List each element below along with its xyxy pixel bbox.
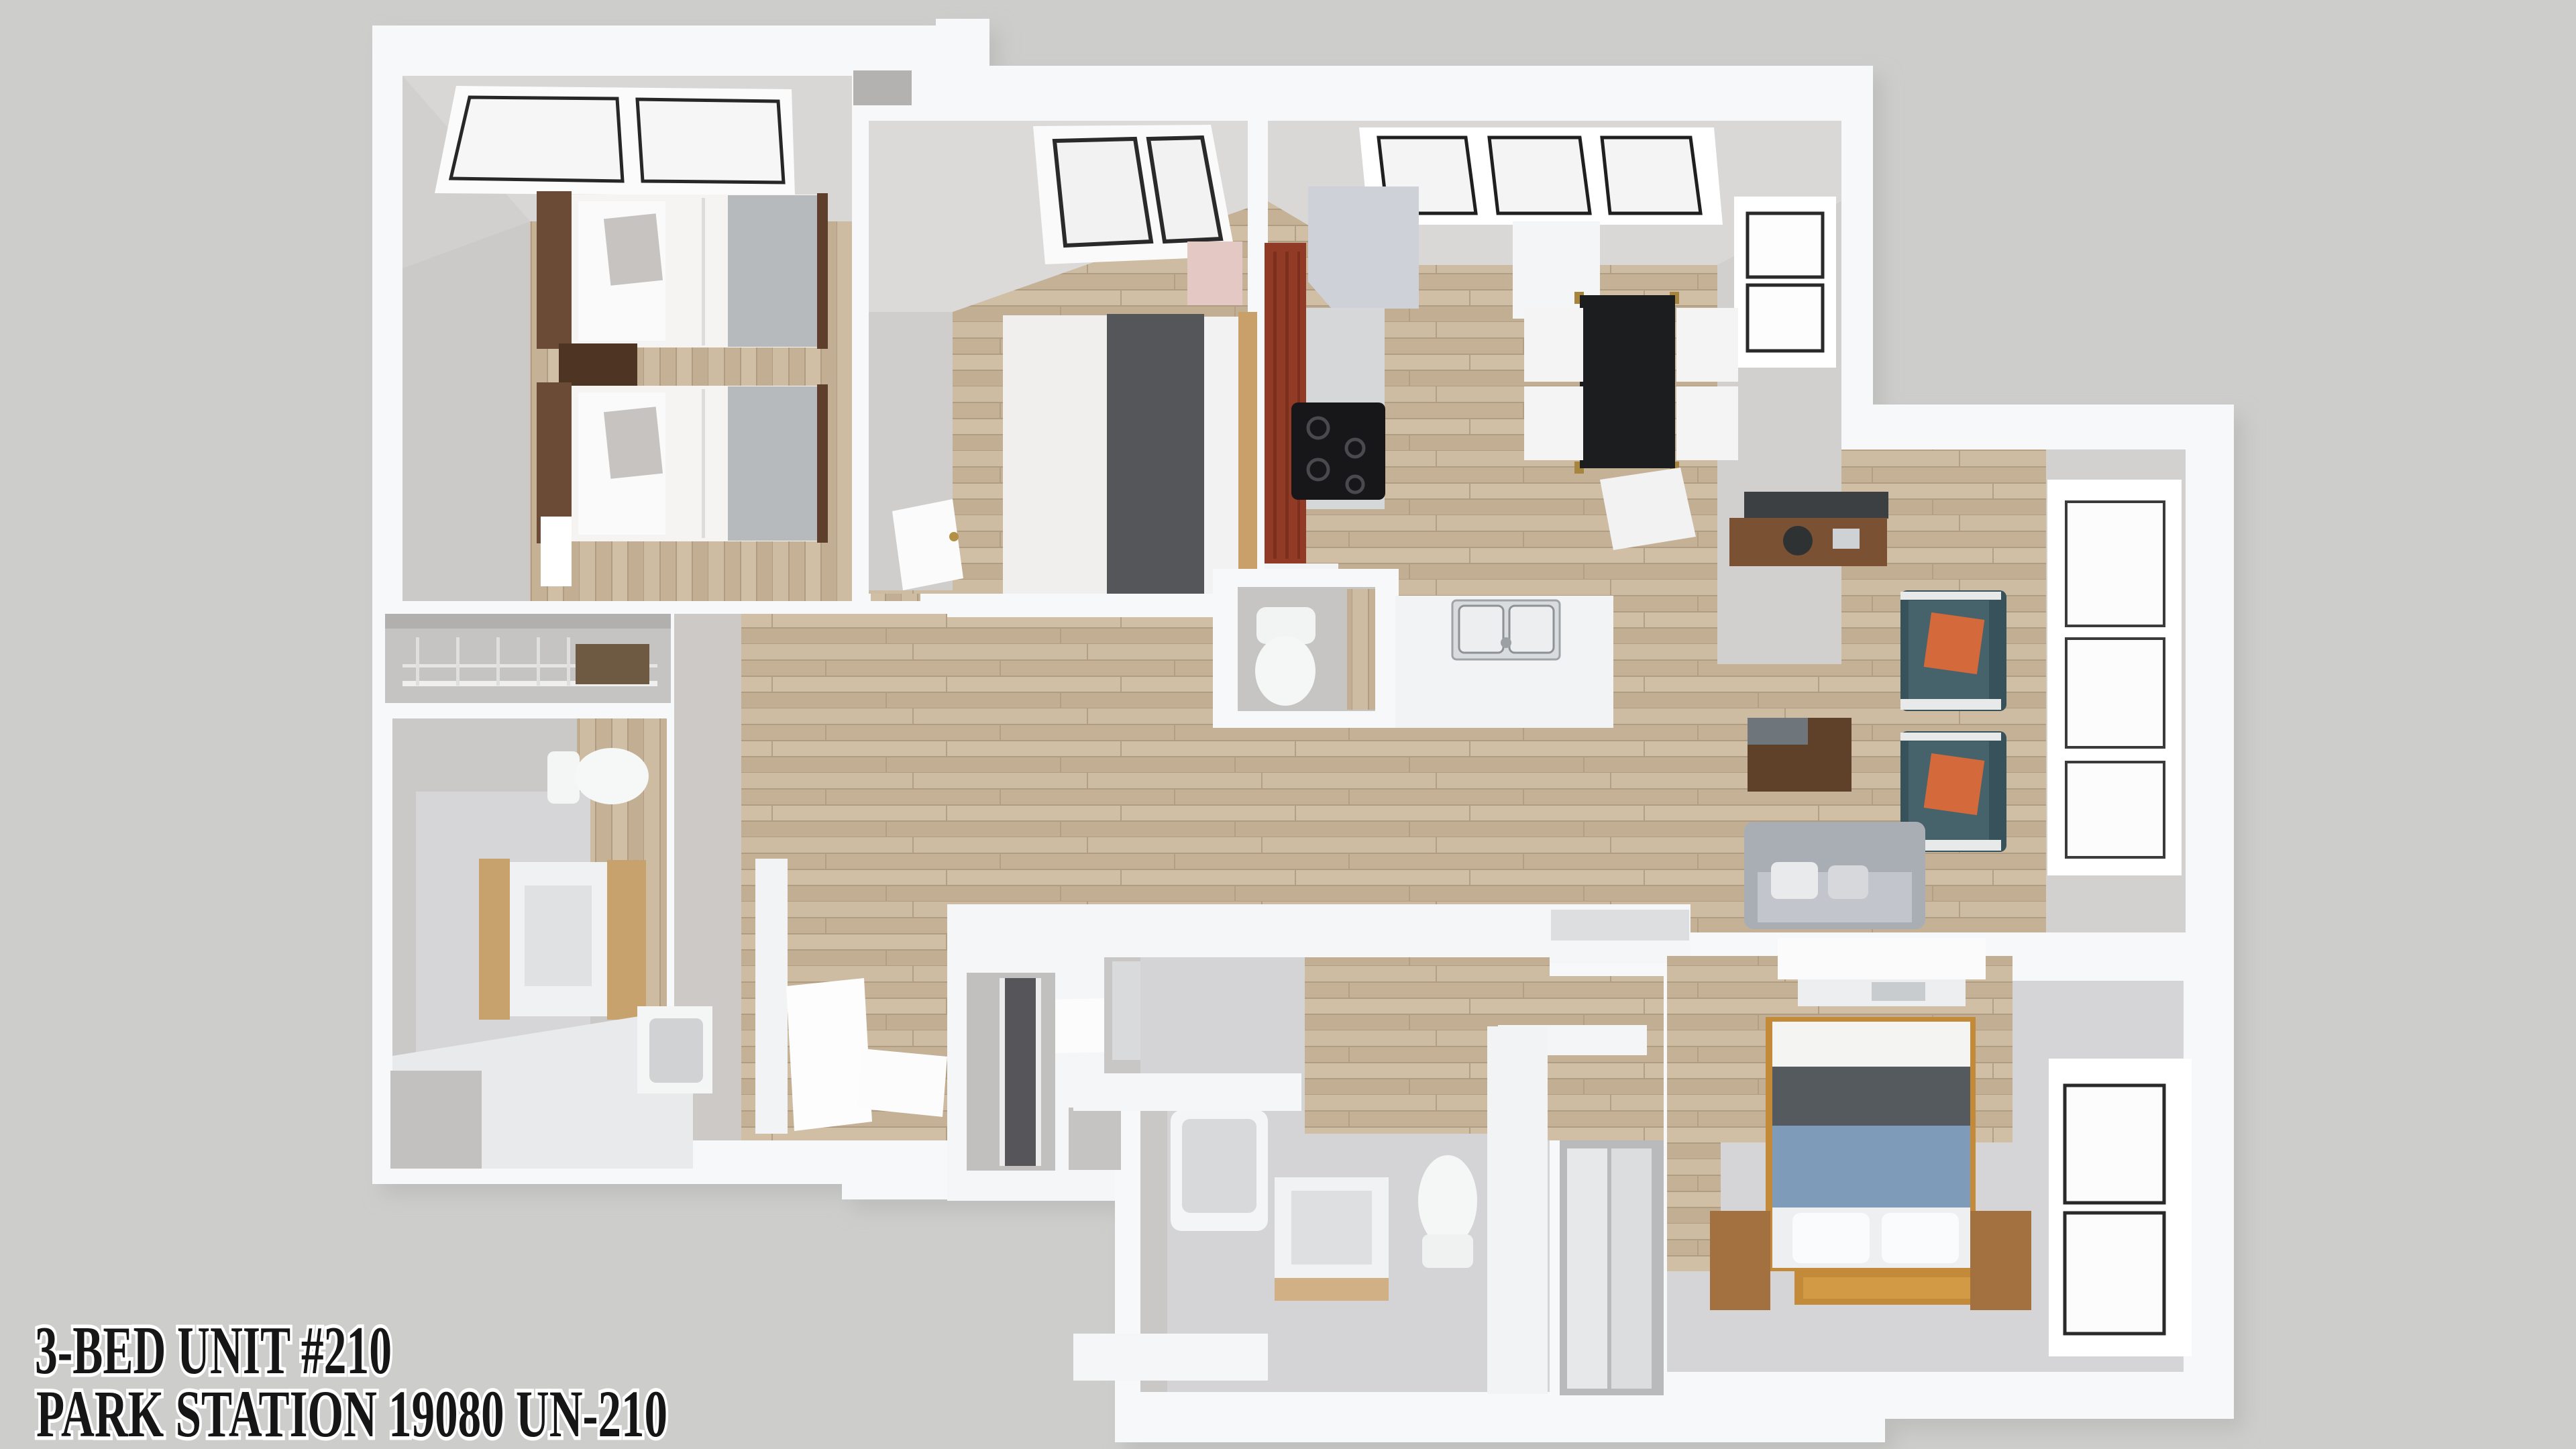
svg-text:PARK STATION 19080 UN-210: PARK STATION 19080 UN-210 — [36, 1377, 667, 1449]
